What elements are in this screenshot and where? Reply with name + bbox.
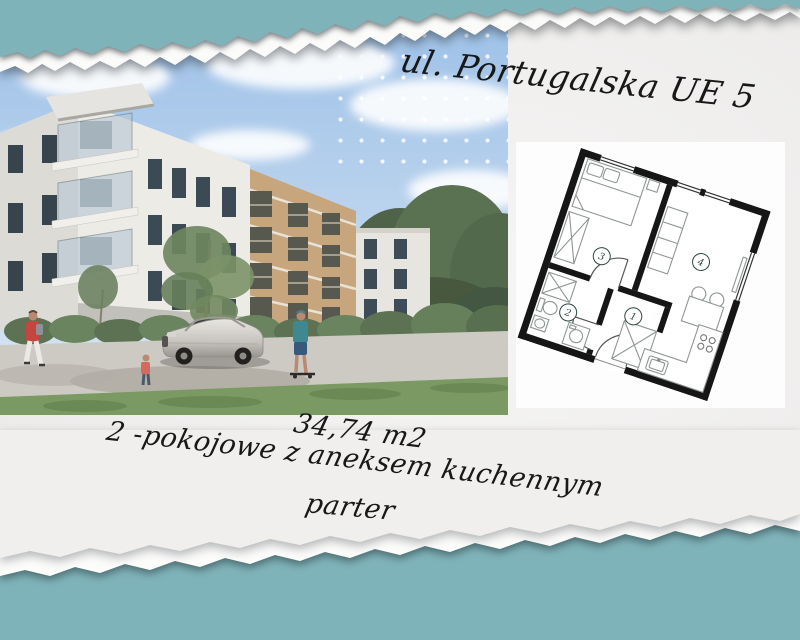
corner-balconies xyxy=(52,113,138,287)
floor-plan: 1 2 3 4 xyxy=(518,148,771,401)
flyer-canvas: 1 2 3 4 ul. Portugalska UE 5 34,74 m2 2 … xyxy=(0,0,800,640)
floor-plan-card: 1 2 3 4 xyxy=(516,142,785,408)
apartment-floor: parter xyxy=(272,488,427,529)
building-photo xyxy=(0,25,508,415)
